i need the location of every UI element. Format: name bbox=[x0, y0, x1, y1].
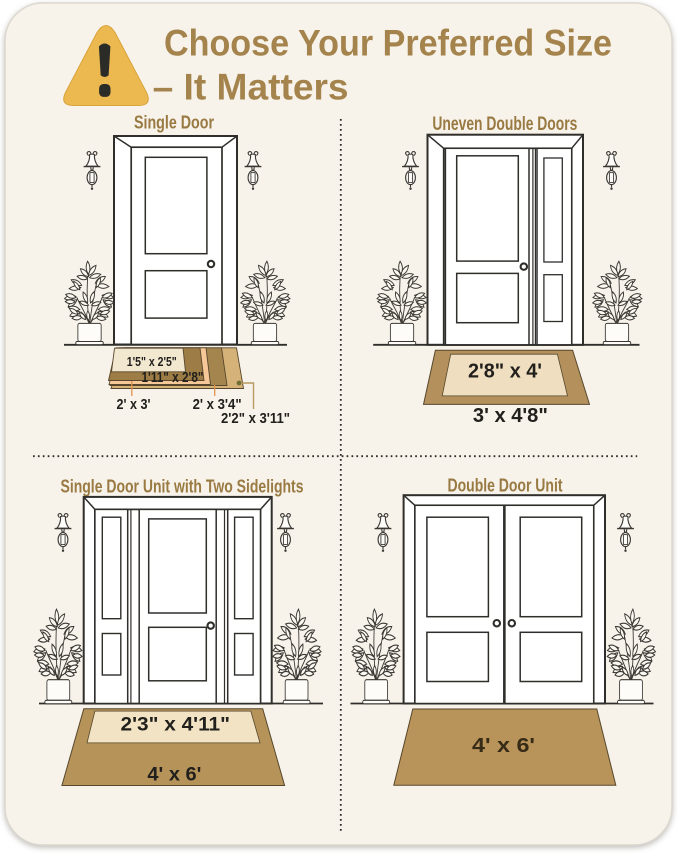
svg-text:1'5" x 2'5": 1'5" x 2'5" bbox=[127, 354, 177, 369]
svg-text:4' x 6': 4' x 6' bbox=[147, 765, 201, 786]
svg-text:2' x 3': 2' x 3' bbox=[117, 396, 151, 413]
svg-text:2'8" x 4': 2'8" x 4' bbox=[468, 360, 542, 382]
svg-text:Uneven Double Doors: Uneven Double Doors bbox=[432, 114, 577, 135]
svg-text:Choose Your Preferred Size: Choose Your Preferred Size bbox=[164, 23, 612, 64]
svg-text:Double Door Unit: Double Door Unit bbox=[448, 476, 563, 496]
svg-text:3' x 4'8": 3' x 4'8" bbox=[473, 405, 548, 427]
svg-text:4' x 6': 4' x 6' bbox=[472, 734, 535, 757]
svg-text:– It Matters: – It Matters bbox=[153, 67, 349, 108]
svg-text:Single Door Unit with Two Side: Single Door Unit with Two Sidelights bbox=[61, 476, 304, 496]
svg-text:2'3" x 4'11": 2'3" x 4'11" bbox=[121, 715, 231, 736]
svg-text:2'2" x 3'11": 2'2" x 3'11" bbox=[221, 410, 290, 427]
svg-text:1'11" x 2'8": 1'11" x 2'8" bbox=[142, 370, 204, 386]
svg-text:Single Door: Single Door bbox=[134, 111, 214, 132]
